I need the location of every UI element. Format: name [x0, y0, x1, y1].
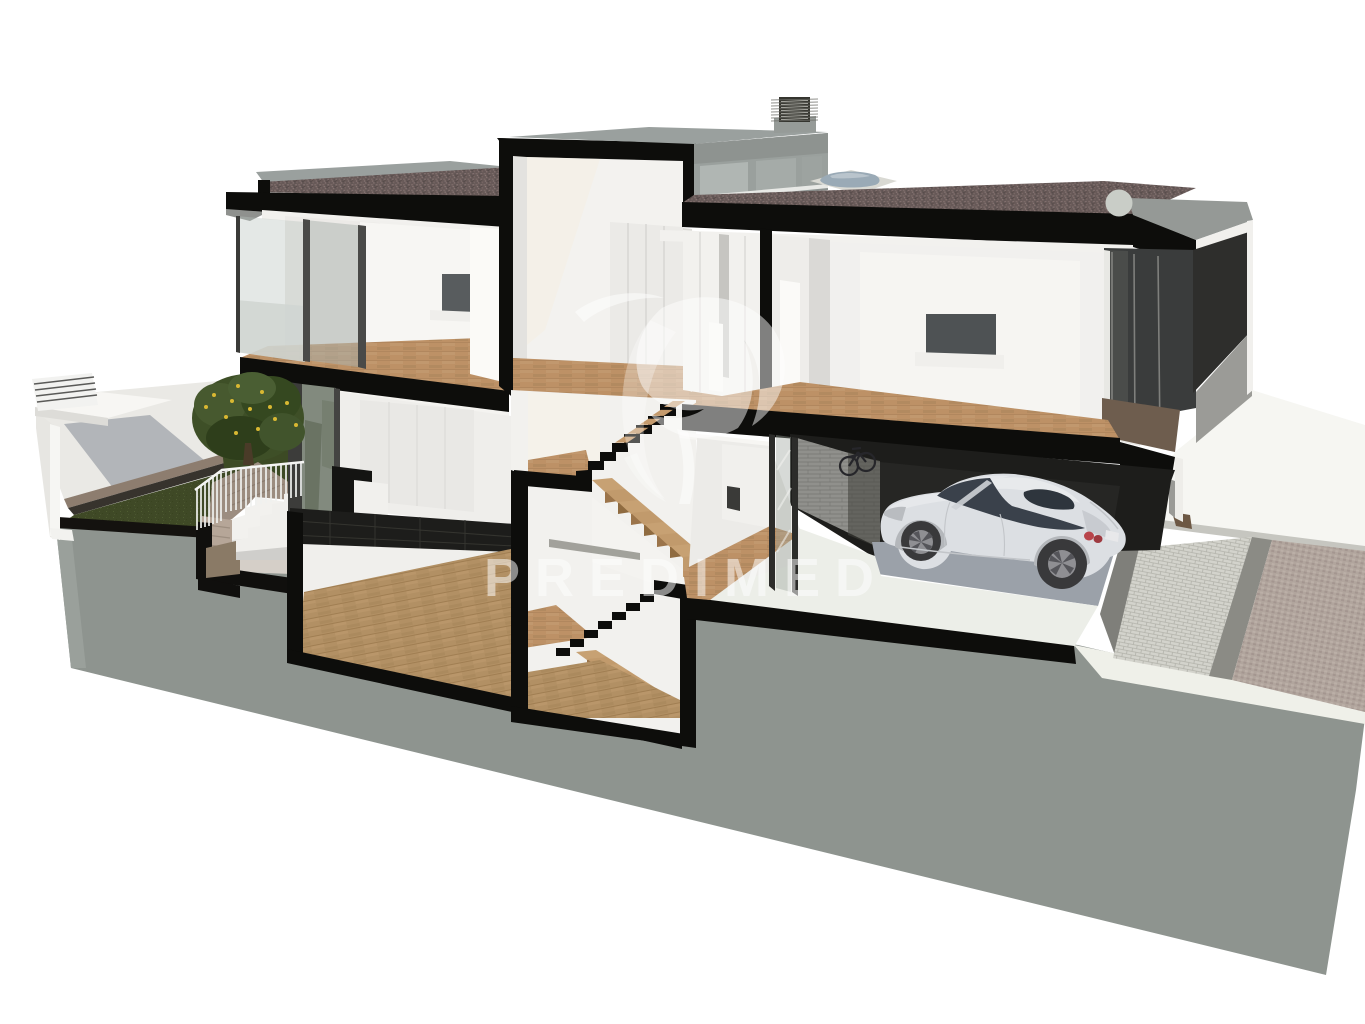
- svg-text:PREDIMED: PREDIMED: [484, 548, 889, 608]
